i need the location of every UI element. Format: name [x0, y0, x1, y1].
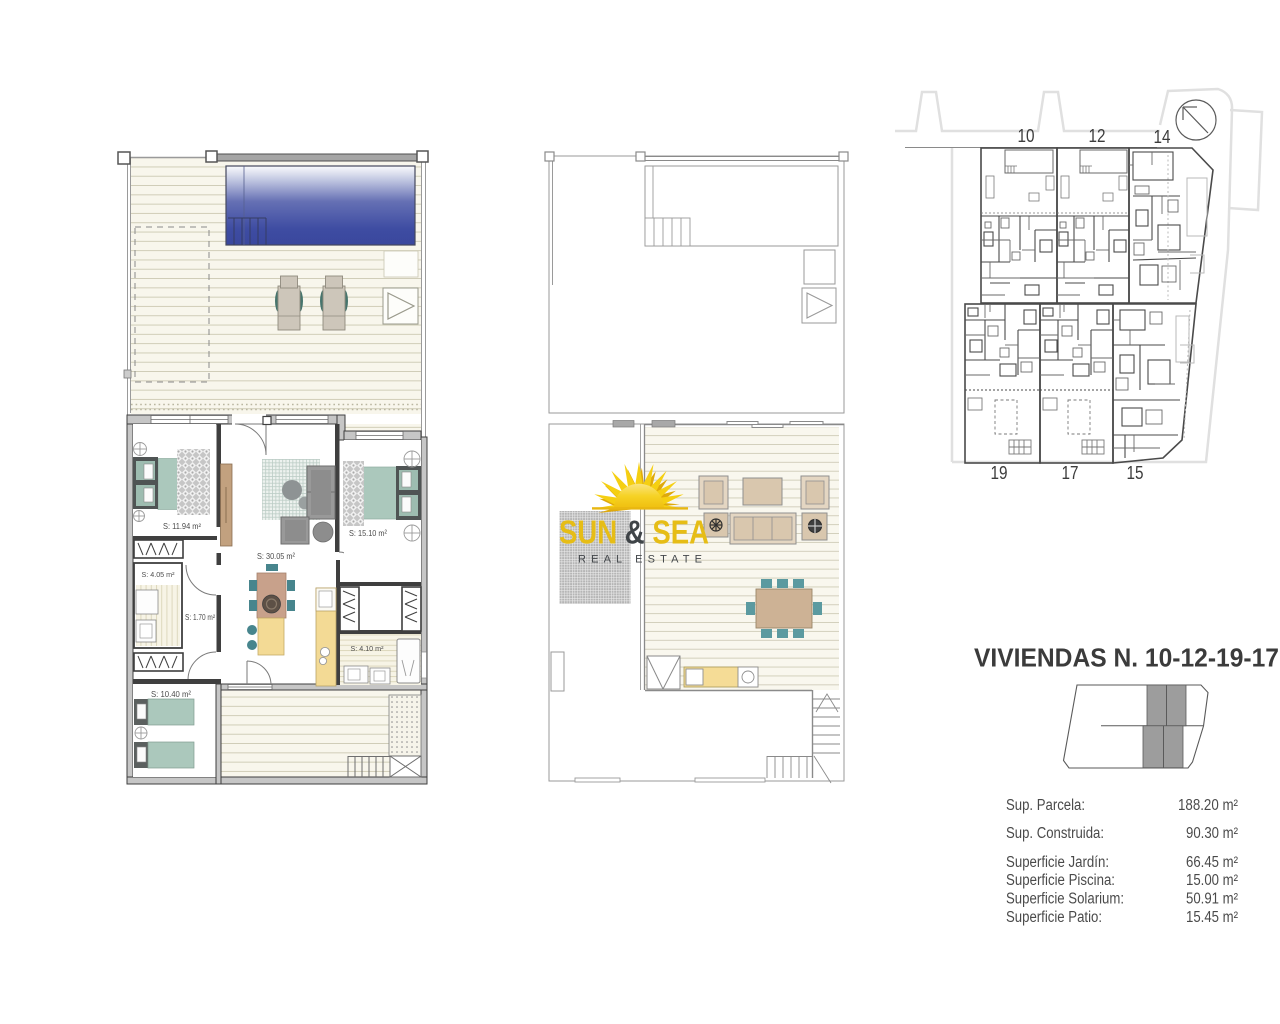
svg-text:S: 11.94 m²: S: 11.94 m² [163, 522, 201, 531]
svg-text:Superficie Jardín:: Superficie Jardín: [1006, 854, 1109, 871]
svg-text:17: 17 [1062, 463, 1079, 483]
svg-text:S: 1.70 m²: S: 1.70 m² [185, 613, 215, 622]
svg-text:Superficie Patio:: Superficie Patio: [1006, 909, 1102, 926]
svg-text:Sup. Construida:: Sup. Construida: [1006, 825, 1104, 842]
svg-text:Sup. Parcela:: Sup. Parcela: [1006, 797, 1085, 814]
svg-text:Superficie Solarium:: Superficie Solarium: [1006, 891, 1124, 908]
svg-text:14: 14 [1154, 127, 1171, 147]
svg-text:S: 30.05 m²: S: 30.05 m² [257, 551, 295, 561]
svg-text:188.20 m²: 188.20 m² [1178, 797, 1238, 814]
svg-text:90.30 m²: 90.30 m² [1186, 825, 1238, 842]
svg-text:VIVIENDAS N. 10-12-19-17: VIVIENDAS N. 10-12-19-17 [974, 643, 1279, 673]
svg-text:10: 10 [1018, 126, 1035, 146]
svg-text:19: 19 [991, 463, 1008, 483]
svg-text:Superficie Piscina:: Superficie Piscina: [1006, 872, 1115, 889]
svg-text:REAL ESTATE: REAL ESTATE [578, 554, 702, 566]
svg-text:15.00 m²: 15.00 m² [1186, 872, 1238, 889]
svg-text:15.45 m²: 15.45 m² [1186, 909, 1238, 926]
svg-text:S: 4.10 m²: S: 4.10 m² [351, 644, 384, 653]
svg-text:12: 12 [1089, 126, 1106, 146]
svg-text:S: 10.40 m²: S: 10.40 m² [151, 689, 191, 699]
svg-text:SUN & SEA: SUN & SEA [559, 514, 709, 551]
svg-text:50.91 m²: 50.91 m² [1186, 891, 1238, 908]
svg-text:15: 15 [1127, 463, 1144, 483]
svg-text:66.45 m²: 66.45 m² [1186, 854, 1238, 871]
svg-text:S: 15.10 m²: S: 15.10 m² [349, 528, 387, 538]
svg-text:S: 4.05 m²: S: 4.05 m² [142, 570, 175, 579]
